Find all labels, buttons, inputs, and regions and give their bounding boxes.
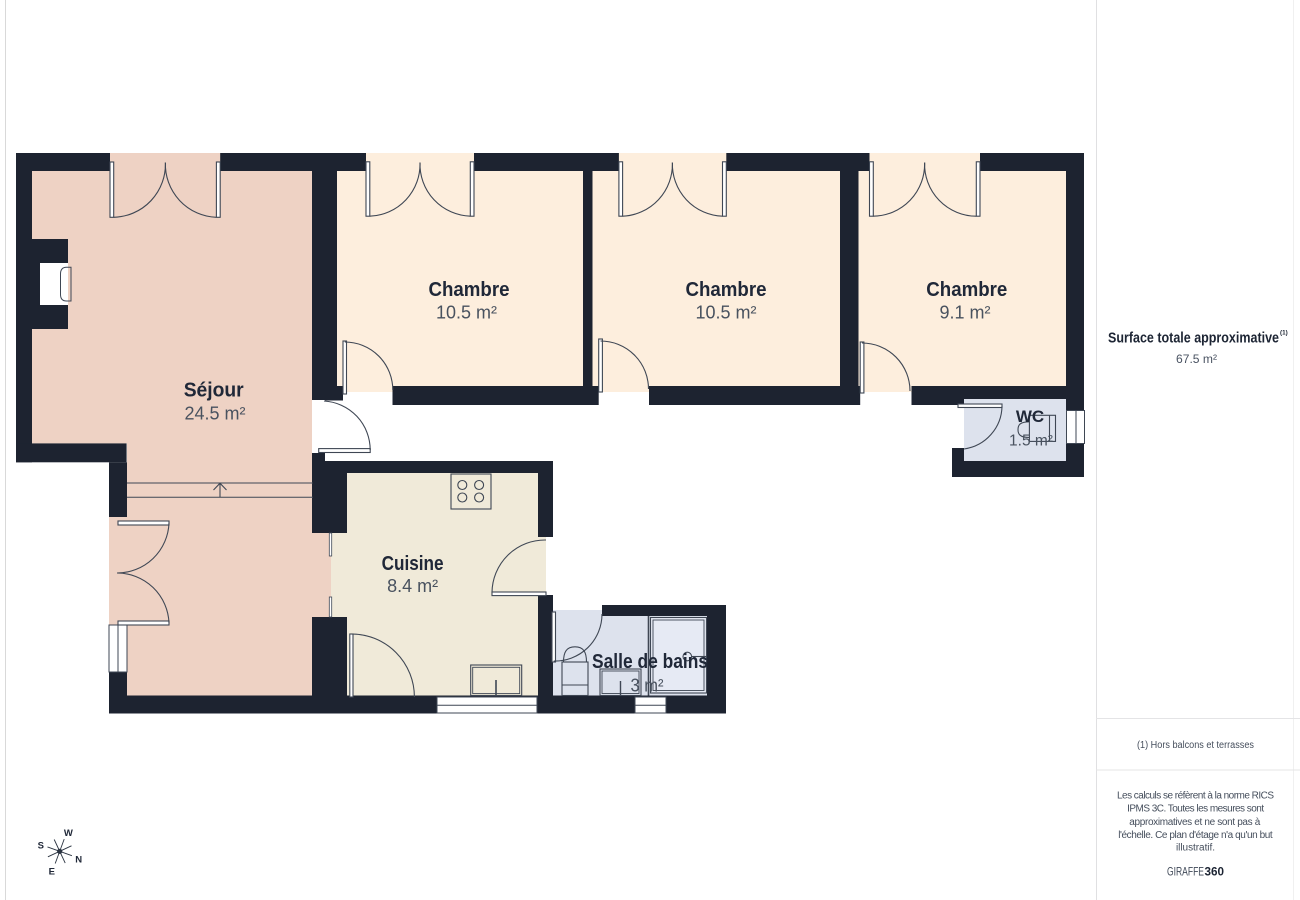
svg-text:360: 360: [1205, 867, 1225, 879]
svg-text:8.4 m²: 8.4 m²: [387, 576, 438, 596]
svg-text:illustratif.: illustratif.: [1176, 843, 1215, 854]
svg-text:9.1 m²: 9.1 m²: [939, 303, 990, 323]
svg-text:Chambre: Chambre: [926, 279, 1007, 301]
svg-text:24.5 m²: 24.5 m²: [184, 404, 245, 424]
svg-text:WC: WC: [1016, 407, 1044, 426]
svg-text:Séjour: Séjour: [184, 380, 244, 402]
svg-text:Cuisine: Cuisine: [382, 553, 444, 575]
svg-text:l'échelle. Ce plan d'étage n'a: l'échelle. Ce plan d'étage n'a qu'un but: [1118, 830, 1273, 841]
svg-text:10.5 m²: 10.5 m²: [436, 303, 497, 323]
svg-text:GIRAFFE: GIRAFFE: [1167, 867, 1204, 879]
svg-text:10.5 m²: 10.5 m²: [695, 303, 756, 323]
svg-text:E: E: [49, 867, 55, 878]
svg-text:W: W: [64, 828, 73, 839]
svg-text:S: S: [38, 840, 44, 851]
svg-text:Surface totale approximative: Surface totale approximative: [1108, 330, 1279, 347]
svg-text:3 m²: 3 m²: [631, 676, 664, 696]
svg-text:(1): (1): [1280, 330, 1288, 337]
svg-text:Salle de bains: Salle de bains: [592, 651, 708, 673]
svg-text:approximatives et ne sont pas: approximatives et ne sont pas à: [1129, 817, 1260, 828]
svg-text:N: N: [75, 855, 82, 866]
svg-text:(1) Hors balcons et terrasses: (1) Hors balcons et terrasses: [1137, 740, 1254, 751]
svg-text:Chambre: Chambre: [686, 279, 767, 301]
svg-text:1.5 m²: 1.5 m²: [1009, 433, 1053, 450]
svg-text:Les calculs se réfèrent à la n: Les calculs se réfèrent à la norme RICS: [1117, 790, 1274, 801]
svg-text:IPMS 3C. Toutes les mesures so: IPMS 3C. Toutes les mesures sont: [1127, 803, 1264, 814]
svg-text:67.5 m²: 67.5 m²: [1176, 352, 1217, 366]
svg-text:Chambre: Chambre: [429, 279, 510, 301]
